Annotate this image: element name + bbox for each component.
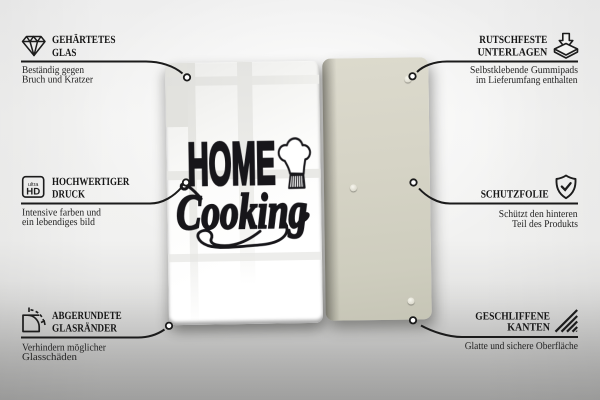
svg-text:GLASRÄNDER: GLASRÄNDER [52,322,118,335]
svg-text:HOCHWERTIGER: HOCHWERTIGER [52,176,130,188]
svg-text:ABGERUNDETE: ABGERUNDETE [52,310,122,322]
svg-text:KANTEN: KANTEN [507,322,550,334]
svg-text:GESCHLIFFENE: GESCHLIFFENE [475,311,550,323]
svg-text:SCHUTZFOLIE: SCHUTZFOLIE [481,189,549,201]
svg-text:UNTERLAGEN: UNTERLAGEN [478,47,548,59]
svg-text:DRUCK: DRUCK [52,188,85,200]
svg-text:Bruch und Kratzer: Bruch und Kratzer [22,75,94,86]
svg-text:ein lebendiges bild: ein lebendiges bild [22,217,96,228]
svg-text:HD: HD [26,187,40,198]
svg-text:GLAS: GLAS [52,47,76,59]
svg-text:Glatte und sichere Oberfläche: Glatte und sichere Oberfläche [465,341,579,352]
svg-text:Glasschäden: Glasschäden [22,352,77,363]
svg-text:Teil des Produkts: Teil des Produkts [512,219,578,230]
svg-text:im Lieferumfang enthalten: im Lieferumfang enthalten [476,75,578,86]
svg-text:RUTSCHFESTE: RUTSCHFESTE [479,34,547,46]
svg-text:GEHÄRTETES: GEHÄRTETES [52,33,116,46]
